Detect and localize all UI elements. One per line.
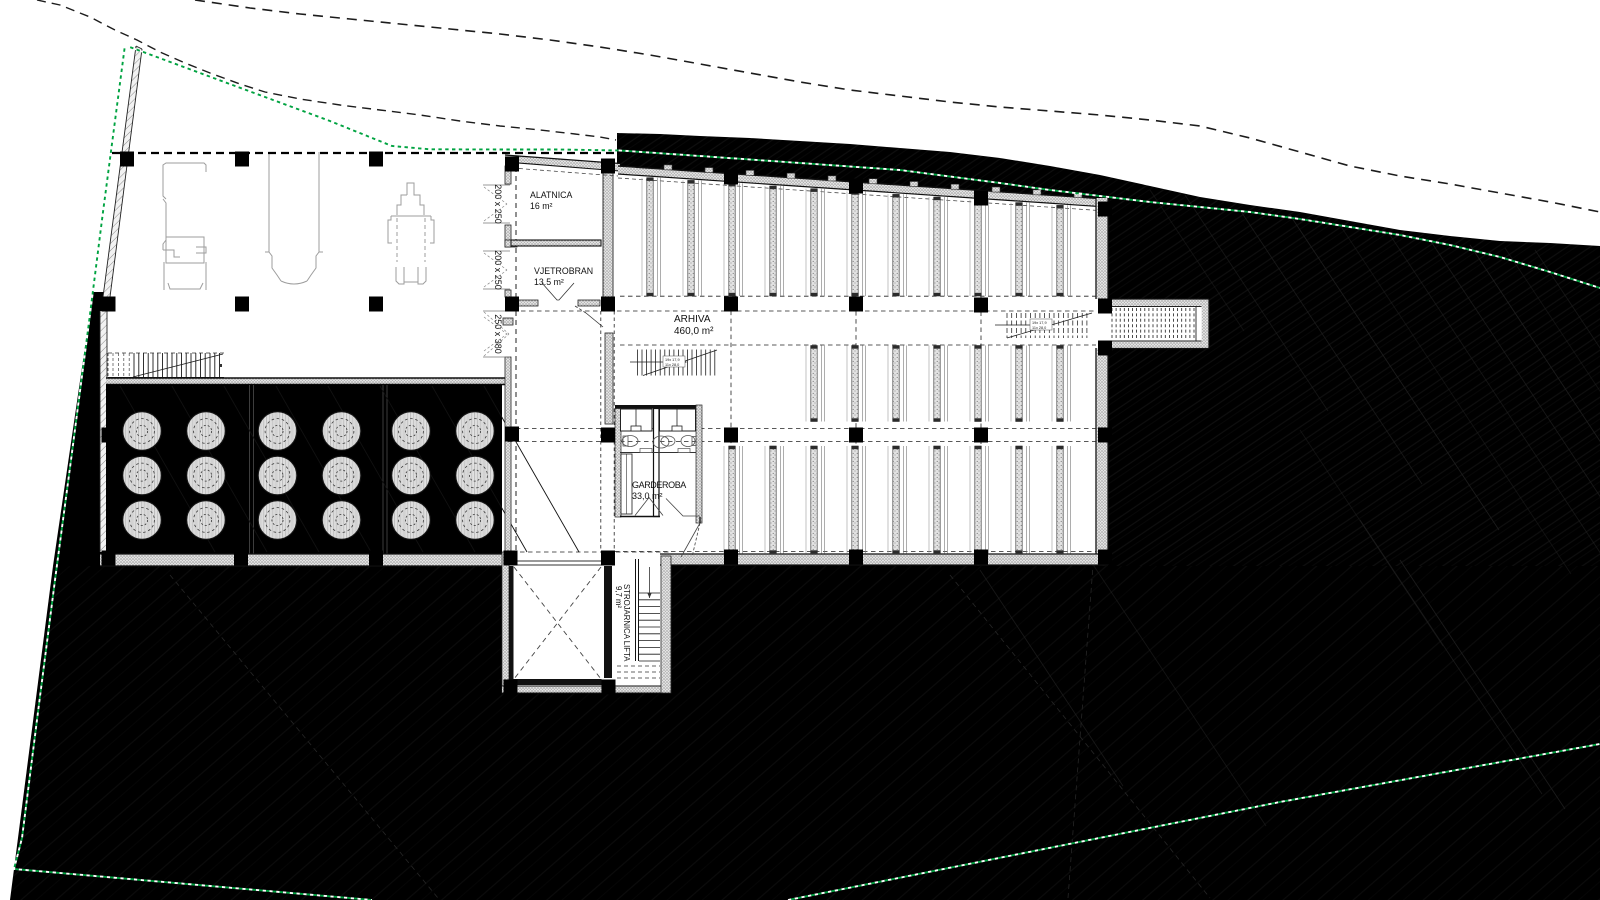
svg-text:ALATNICA: ALATNICA	[530, 190, 572, 200]
svg-text:19x 17,9: 19x 17,9	[1032, 321, 1047, 325]
svg-text:33,0 m²: 33,0 m²	[632, 491, 663, 501]
svg-text:460,0 m²: 460,0 m²	[674, 326, 714, 337]
svg-text:11x 28,0: 11x 28,0	[665, 363, 679, 367]
svg-text:19x 17,9: 19x 17,9	[665, 358, 680, 362]
svg-text:ARHIVA: ARHIVA	[674, 314, 711, 325]
svg-text:16 m²: 16 m²	[530, 201, 553, 211]
svg-text:GARDEROBA: GARDEROBA	[632, 480, 686, 490]
svg-text:9,7 m²: 9,7 m²	[614, 586, 623, 608]
svg-text:11x 28,0: 11x 28,0	[1032, 326, 1046, 330]
svg-text:200 x 250: 200 x 250	[493, 250, 503, 290]
svg-text:13.5 m²: 13.5 m²	[534, 277, 564, 287]
svg-text:VJETROBRAN: VJETROBRAN	[534, 266, 593, 276]
svg-text:200 x 250: 200 x 250	[493, 184, 503, 224]
svg-text:250 x 380: 250 x 380	[493, 314, 503, 354]
